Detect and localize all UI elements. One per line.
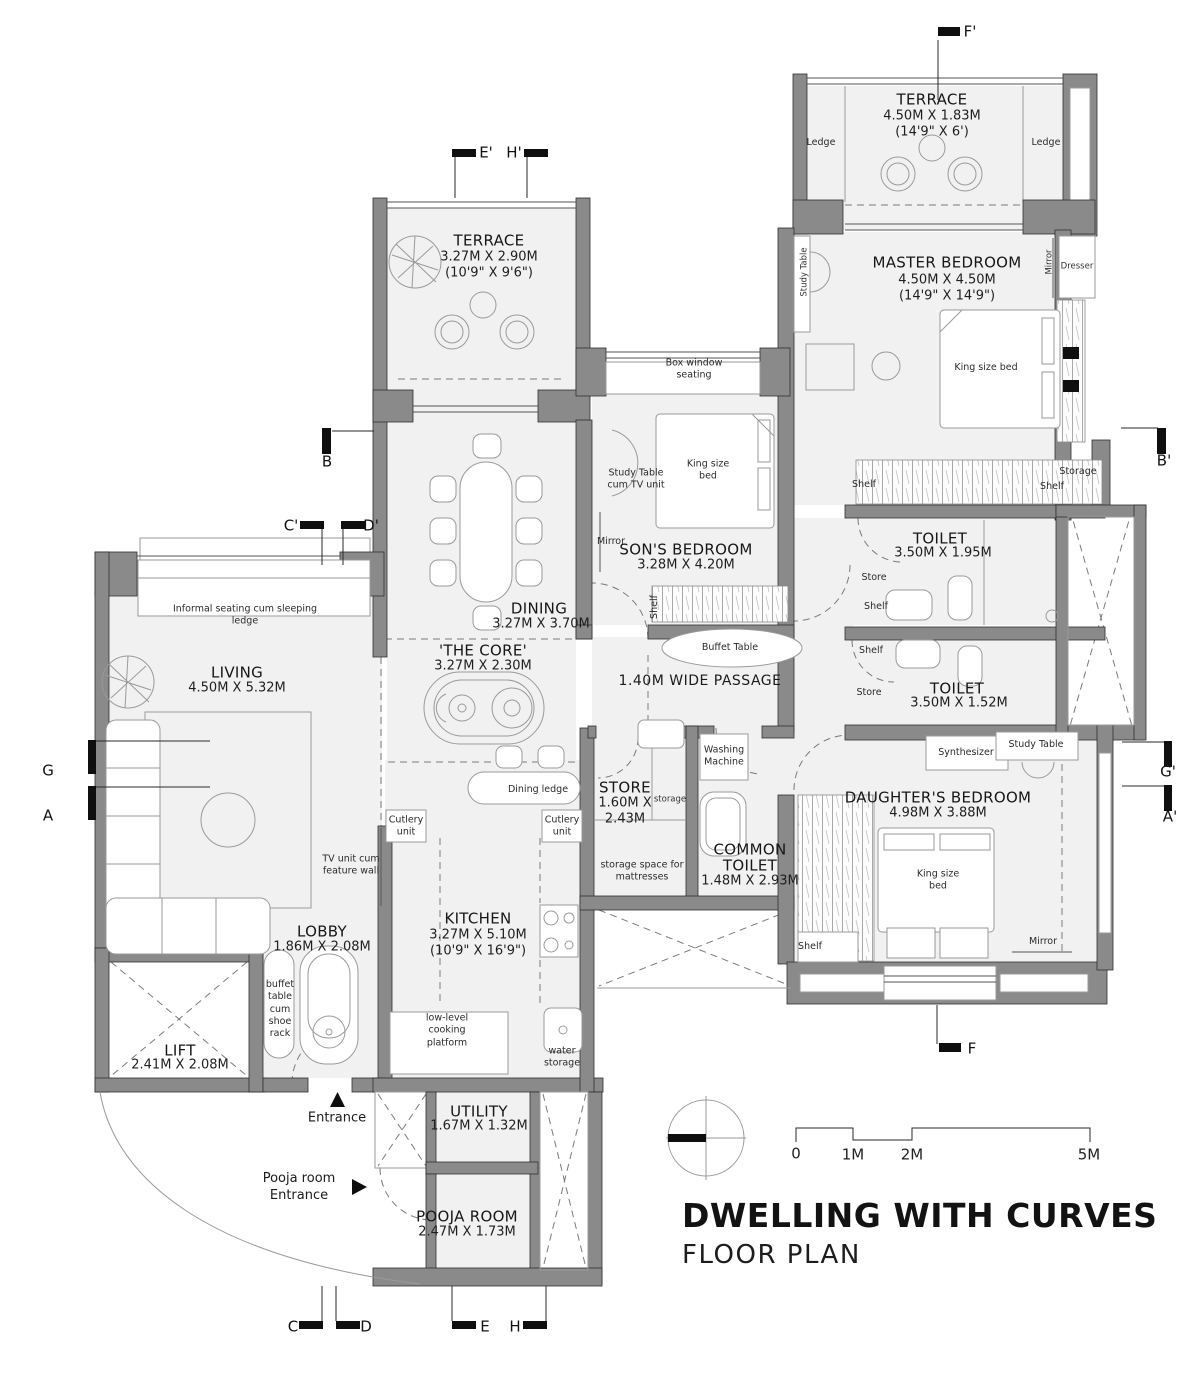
room-dims-pooja-room: 2.47M X 1.73M <box>418 1225 516 1242</box>
annotation-shelf-toilet2: Shelf <box>859 645 883 657</box>
annotation-study-table-master: Study Table <box>799 247 810 296</box>
annotation-shelf-2: Shelf <box>1040 481 1064 493</box>
annotation-cutlery-left: Cutlery unit <box>383 815 429 840</box>
annotation-tv-feature-wall: TV unit cum feature wall <box>305 854 397 879</box>
annotation-synthesizer: Synthesizer <box>938 747 994 759</box>
room-dims-ft-terrace-master: (14'9" X 6') <box>895 125 969 142</box>
annotation-informal-seating: Informal seating cum sleeping ledge <box>160 604 330 629</box>
room-label-terrace-master: TERRACE <box>897 90 968 110</box>
room-label-terrace-dining: TERRACE <box>454 231 525 251</box>
annotation-ledge-left: Ledge <box>807 137 836 149</box>
room-dims-ft-terrace-dining: (10'9" X 9'6") <box>445 266 533 283</box>
section-marker-a: A <box>43 806 53 826</box>
annotation-king-bed-master: King size bed <box>954 362 1017 374</box>
section-marker-f-prime: F' <box>964 22 977 42</box>
room-dims-utility: 1.67M X 1.32M <box>430 1119 528 1136</box>
annotation-box-window-seating: Box window seating <box>656 358 732 383</box>
annotation-study-table-tv: Study Table cum TV unit <box>604 468 668 493</box>
room-dims-living: 4.50M X 5.32M <box>188 681 286 698</box>
annotation-mirror-master: Mirror <box>1044 249 1055 274</box>
section-marker-c: C <box>288 1317 298 1337</box>
room-dims-store-2: 2.43M <box>605 812 645 829</box>
section-marker-a-prime: A' <box>1163 807 1177 827</box>
room-dims-ft-master-bedroom: (14'9" X 14'9") <box>899 289 995 306</box>
annotation-ledge-right: Ledge <box>1032 137 1061 149</box>
section-marker-b: B <box>322 452 332 472</box>
section-marker-d-prime: D' <box>363 516 379 536</box>
annotation-washing-machine: Washing Machine <box>695 745 753 770</box>
room-label-master-bedroom: MASTER BEDROOM <box>872 253 1021 273</box>
annotation-buffet-shoe-rack: buffet table cum shoe rack <box>258 979 302 1041</box>
room-dims-ft-kitchen: (10'9" X 16'9") <box>430 944 526 961</box>
room-dims-master-bedroom: 4.50M X 4.50M <box>898 273 996 290</box>
annotation-cooking-platform: low-level cooking platform <box>414 1012 480 1049</box>
scale-tick-0: 0 <box>791 1144 801 1164</box>
floor-plan-sheet: TERRACE 4.50M X 1.83M (14'9" X 6') MASTE… <box>0 0 1200 1390</box>
room-dims-toilet-master: 3.50M X 1.95M <box>894 546 992 563</box>
room-dims-core: 3.27M X 2.30M <box>434 659 532 676</box>
section-marker-e-prime: E' <box>479 143 493 163</box>
annotation-dining-ledge: Dining ledge <box>508 784 568 796</box>
section-marker-h: H <box>509 1317 520 1337</box>
room-dims-terrace-master: 4.50M X 1.83M <box>883 109 981 126</box>
room-dims-lobby: 1.86M X 2.08M <box>273 940 371 957</box>
annotation-shelf-sons: Shelf <box>649 595 661 619</box>
annotation-water-storage: water storage <box>536 1046 588 1071</box>
annotation-mirror-sons: Mirror <box>597 536 625 548</box>
room-dims-lift: 2.41M X 2.08M <box>131 1058 229 1075</box>
annotation-store-toilet2: Store <box>856 687 881 699</box>
section-marker-e: E <box>480 1317 489 1337</box>
section-marker-g-prime: G' <box>1160 762 1176 782</box>
room-dims-toilet-sons: 3.50M X 1.52M <box>910 696 1008 713</box>
annotation-entrance: Entrance <box>308 1111 366 1128</box>
annotation-shelf-toilet1: Shelf <box>864 601 888 613</box>
annotation-storage-right: Storage <box>1059 466 1096 478</box>
room-dims-store-1: 1.60M X <box>598 796 651 813</box>
section-marker-b-prime: B' <box>1157 451 1171 471</box>
annotation-storage-store: storage <box>654 794 686 805</box>
section-marker-d: D <box>360 1317 372 1337</box>
label-passage: 1.40M WIDE PASSAGE <box>619 672 782 690</box>
section-marker-f: F <box>968 1039 977 1059</box>
drawing-title: DWELLING WITH CURVES <box>682 1196 1157 1235</box>
annotation-shelf-1: Shelf <box>852 479 876 491</box>
room-dims-sons-bedroom: 3.28M X 4.20M <box>637 558 735 575</box>
drawing-subtitle: FLOOR PLAN <box>682 1240 861 1270</box>
annotation-shelf-daughters: Shelf <box>798 941 822 953</box>
room-dims-common-toilet: 1.48M X 2.93M <box>701 874 799 891</box>
section-marker-h-prime: H' <box>506 143 521 163</box>
annotation-cutlery-right: Cutlery unit <box>539 815 585 840</box>
annotation-study-table-daughters: Study Table <box>1008 739 1063 751</box>
annotation-dresser: Dresser <box>1061 261 1094 272</box>
annotation-store-toilet1: Store <box>861 572 886 584</box>
room-dims-dining: 3.27M X 3.70M <box>492 617 590 634</box>
annotation-mirror-daughters: Mirror <box>1029 936 1057 948</box>
room-dims-daughters-bedroom: 4.98M X 3.88M <box>889 806 987 823</box>
labels-layer: TERRACE 4.50M X 1.83M (14'9" X 6') MASTE… <box>0 0 1200 1390</box>
room-label-kitchen: KITCHEN <box>444 909 511 929</box>
annotation-buffet-table: Buffet Table <box>702 642 758 654</box>
scale-tick-5m: 5M <box>1078 1145 1101 1165</box>
room-dims-terrace-dining: 3.27M X 2.90M <box>440 250 538 267</box>
annotation-king-bed-daughters: King size bed <box>913 869 963 894</box>
scale-tick-2m: 2M <box>901 1145 924 1165</box>
scale-tick-1m: 1M <box>842 1145 865 1165</box>
annotation-king-bed-sons: King size bed <box>683 459 733 484</box>
annotation-mattress-storage: storage space for mattresses <box>582 860 702 885</box>
section-marker-c-prime: C' <box>284 516 299 536</box>
room-dims-kitchen: 3.27M X 5.10M <box>429 928 527 945</box>
section-marker-g: G <box>42 761 54 781</box>
annotation-pooja-entrance: Pooja room Entrance <box>247 1171 351 1205</box>
